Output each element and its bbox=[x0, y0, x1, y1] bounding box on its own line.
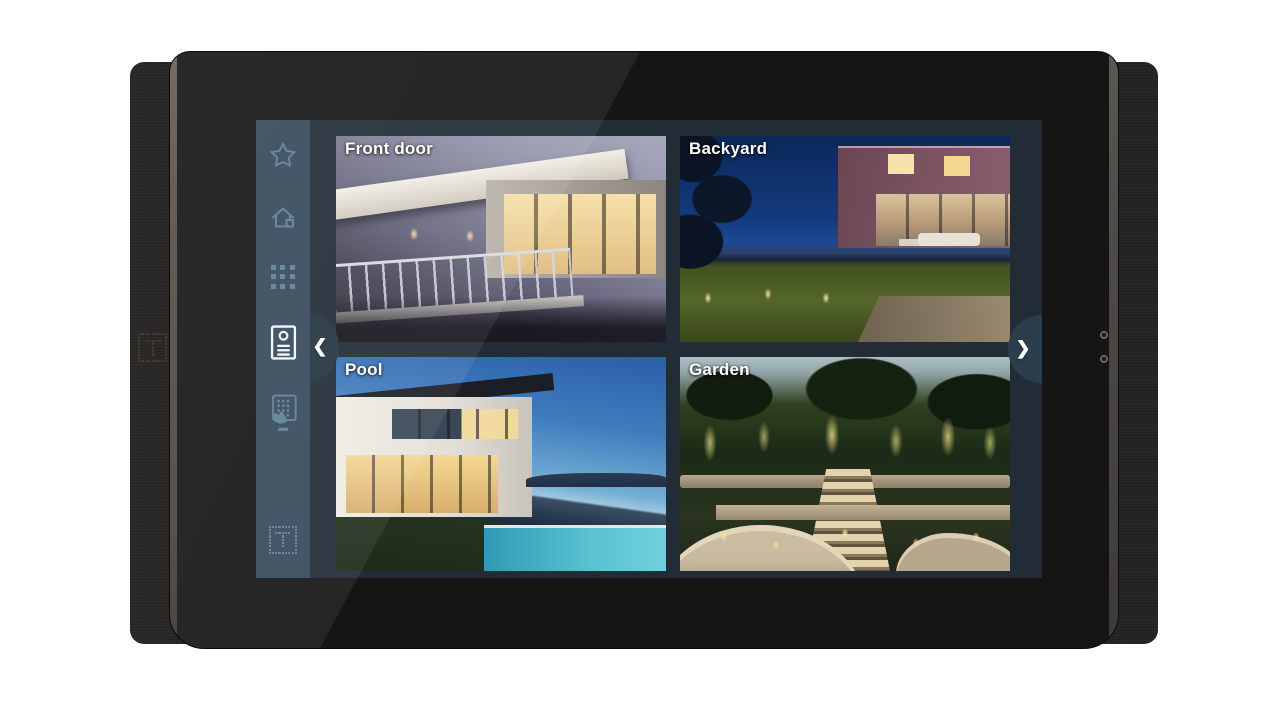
brand-logo-icon bbox=[138, 333, 169, 364]
photo-layer bbox=[526, 473, 666, 487]
apps-grid-icon bbox=[271, 265, 296, 290]
photo-layer bbox=[680, 507, 1010, 571]
photo-layer bbox=[400, 220, 510, 248]
sidebar-item-door-keypad[interactable] bbox=[256, 387, 310, 439]
camera-photo bbox=[336, 357, 666, 571]
screen-right-edge bbox=[1109, 52, 1118, 648]
photo-layer bbox=[690, 278, 910, 312]
photo-layer bbox=[346, 455, 498, 513]
sidebar-item-apps[interactable] bbox=[256, 251, 310, 303]
screw bbox=[1100, 331, 1108, 339]
screw bbox=[1100, 355, 1108, 363]
star-icon bbox=[268, 140, 298, 170]
photo-layer bbox=[888, 154, 914, 174]
sidebar-item-favorites[interactable] bbox=[256, 129, 310, 181]
device-screen: Front door Backyard P bbox=[170, 52, 1118, 648]
door-station-icon bbox=[269, 324, 298, 361]
sidebar-item-door-station[interactable] bbox=[256, 316, 310, 368]
camera-overview-panel: Front door Backyard P bbox=[256, 120, 1042, 578]
camera-photo bbox=[336, 136, 666, 342]
camera-tile-backyard[interactable]: Backyard bbox=[680, 136, 1010, 342]
chevron-left-icon: ❮ bbox=[308, 336, 332, 357]
camera-label: Front door bbox=[345, 139, 433, 159]
camera-photo bbox=[680, 136, 1010, 342]
camera-photo bbox=[680, 357, 1010, 571]
photo-layer bbox=[484, 525, 666, 571]
camera-tile-garden[interactable]: Garden bbox=[680, 357, 1010, 571]
camera-tile-front-door[interactable]: Front door bbox=[336, 136, 666, 342]
camera-label: Backyard bbox=[689, 139, 767, 159]
camera-tile-pool[interactable]: Pool bbox=[336, 357, 666, 571]
sidebar bbox=[256, 120, 310, 578]
photo-layer bbox=[392, 409, 518, 439]
screen-left-edge bbox=[170, 52, 177, 648]
chevron-right-icon: ❯ bbox=[1011, 338, 1035, 359]
camera-label: Garden bbox=[689, 360, 750, 380]
next-page-button[interactable]: ❯ bbox=[1008, 315, 1042, 383]
dot-matrix-logo-icon bbox=[269, 526, 298, 555]
sidebar-item-home[interactable] bbox=[256, 192, 310, 244]
photo-layer bbox=[918, 233, 980, 246]
home-icon bbox=[268, 203, 298, 233]
camera-label: Pool bbox=[345, 360, 383, 380]
photo-layer bbox=[336, 296, 666, 342]
keypad-hand-icon bbox=[267, 393, 299, 433]
sidebar-item-brand[interactable] bbox=[256, 514, 310, 566]
